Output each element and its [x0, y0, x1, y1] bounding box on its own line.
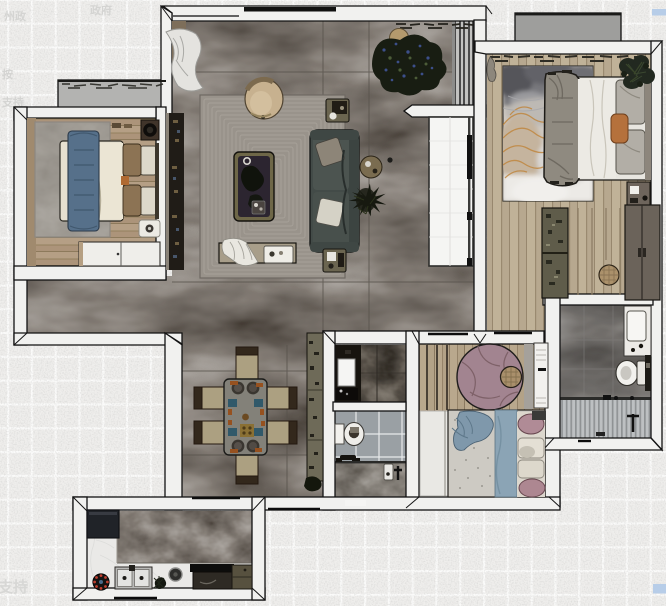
svg-text:按: 按 [2, 67, 13, 81]
svg-text:支持: 支持 [0, 578, 28, 596]
svg-text:州政: 州政 [3, 9, 27, 23]
svg-text:政府: 政府 [90, 3, 112, 17]
